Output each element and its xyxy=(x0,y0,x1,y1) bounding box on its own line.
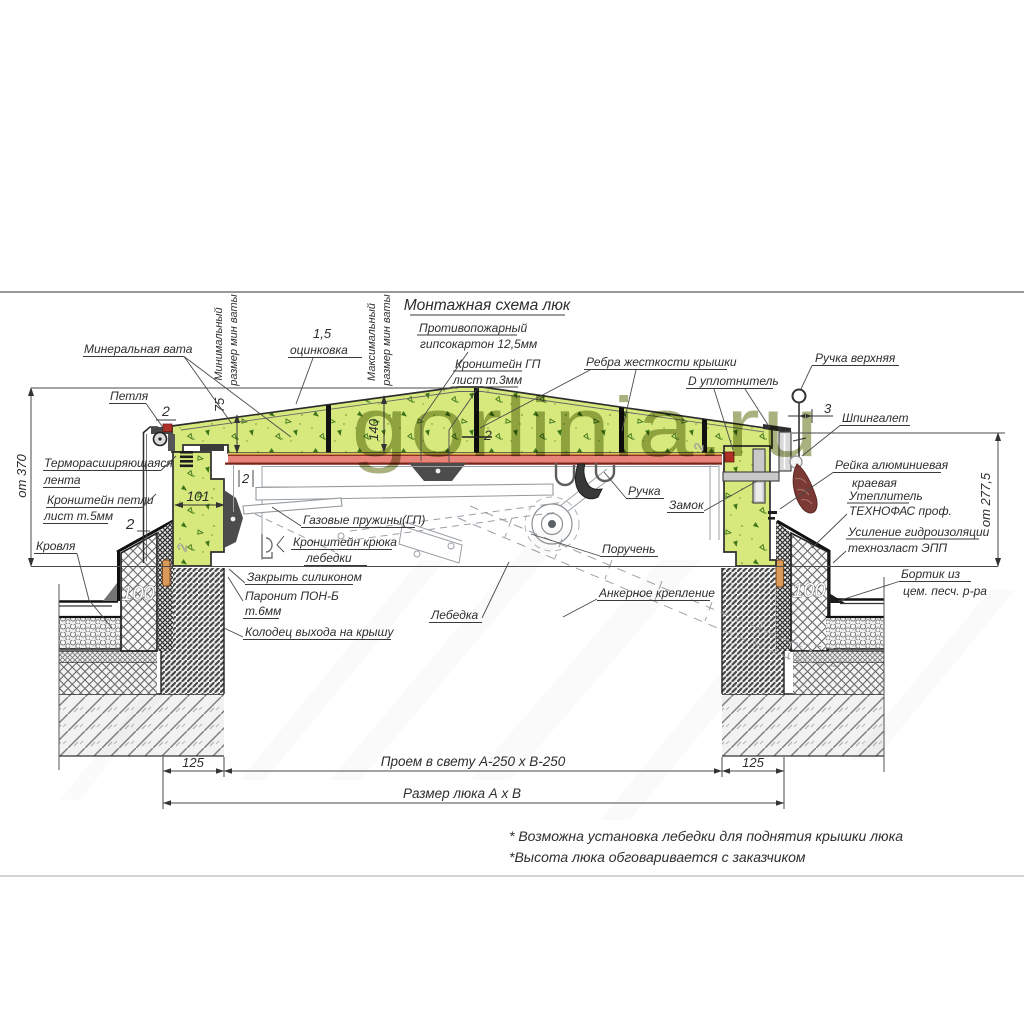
svg-text:Петля: Петля xyxy=(110,389,149,403)
svg-text:Замок: Замок xyxy=(669,498,705,512)
svg-text:Газовые пружины(ГП): Газовые пружины(ГП) xyxy=(303,513,425,527)
svg-text:Терморасширяющаяся: Терморасширяющаяся xyxy=(44,456,173,470)
svg-text:Ручка: Ручка xyxy=(628,484,661,498)
svg-text:Кровля: Кровля xyxy=(36,539,76,553)
svg-text:ТЕХНОФАС проф.: ТЕХНОФАС проф. xyxy=(849,504,952,518)
svg-text:3: 3 xyxy=(824,401,832,416)
svg-text:технозласт ЭПП: технозласт ЭПП xyxy=(848,541,947,555)
svg-text:Минеральная вата: Минеральная вата xyxy=(84,342,193,356)
svg-text:100: 100 xyxy=(792,580,825,602)
svg-text:Ребра жесткости крышки: Ребра жесткости крышки xyxy=(586,355,737,369)
svg-text:100: 100 xyxy=(121,583,154,605)
svg-text:D уплотнитель: D уплотнитель xyxy=(688,374,779,388)
svg-text:Закрыть силиконом: Закрыть силиконом xyxy=(247,570,362,584)
svg-text:лебедки: лебедки xyxy=(305,551,352,565)
svg-text:Поручень: Поручень xyxy=(602,542,655,556)
svg-text:Бортик из: Бортик из xyxy=(901,567,961,581)
svg-text:2: 2 xyxy=(241,471,250,486)
svg-text:т.6мм: т.6мм xyxy=(245,604,281,618)
svg-text:цем. песч. р-ра: цем. песч. р-ра xyxy=(903,584,987,598)
svg-text:Максимальный: Максимальный xyxy=(366,303,378,381)
svg-text:125: 125 xyxy=(742,755,764,770)
svg-text:лист т.5мм: лист т.5мм xyxy=(43,509,113,523)
svg-text:от 370: от 370 xyxy=(14,454,29,498)
svg-text:Утеплитель: Утеплитель xyxy=(848,489,923,503)
svg-text:Противопожарный: Противопожарный xyxy=(419,321,527,335)
svg-text:140: 140 xyxy=(366,418,381,440)
svg-text:Размер люка А х В: Размер люка А х В xyxy=(403,786,521,801)
svg-text:Усиление гидроизоляции: Усиление гидроизоляции xyxy=(847,525,990,539)
svg-text:101: 101 xyxy=(186,488,209,504)
svg-text:Кронштейн ГП: Кронштейн ГП xyxy=(455,357,541,371)
svg-text:Шпингалет: Шпингалет xyxy=(842,411,909,425)
svg-text:Кронштейн крюка: Кронштейн крюка xyxy=(293,535,397,549)
svg-text:гипсокартон 12,5мм: гипсокартон 12,5мм xyxy=(420,337,537,351)
svg-text:125: 125 xyxy=(182,755,204,770)
svg-text:Ручка верхняя: Ручка верхняя xyxy=(815,351,896,365)
svg-text:краевая: краевая xyxy=(852,476,897,490)
svg-text:Проем в свету А-250 х В-250: Проем в свету А-250 х В-250 xyxy=(381,754,566,769)
svg-text:*Высота люка обговаривается с: *Высота люка обговаривается с заказчиком xyxy=(509,849,806,865)
svg-text:Минимальный: Минимальный xyxy=(213,307,225,380)
svg-text:размер мин ваты: размер мин ваты xyxy=(228,294,240,386)
svg-text:лист т.3мм: лист т.3мм xyxy=(452,373,522,387)
svg-text:от 277,5: от 277,5 xyxy=(978,472,993,527)
svg-text:gorlinia.ru: gorlinia.ru xyxy=(352,380,821,474)
svg-text:Кронштейн петли: Кронштейн петли xyxy=(47,493,154,507)
svg-text:лента: лента xyxy=(43,473,81,487)
svg-text:оцинковка: оцинковка xyxy=(290,343,348,357)
svg-text:* Возможна установка лебедки д: * Возможна установка лебедки для подняти… xyxy=(509,828,903,844)
svg-text:2: 2 xyxy=(125,516,135,533)
svg-text:2: 2 xyxy=(161,403,170,419)
svg-text:Рейка алюминиевая: Рейка алюминиевая xyxy=(835,458,949,472)
svg-text:размер мин ваты: размер мин ваты xyxy=(381,294,393,386)
svg-text:Паронит ПОН-Б: Паронит ПОН-Б xyxy=(245,589,339,603)
svg-text:2: 2 xyxy=(483,427,492,443)
svg-text:1,5: 1,5 xyxy=(313,326,332,341)
svg-text:Монтажная схема люк: Монтажная схема люк xyxy=(404,297,571,314)
